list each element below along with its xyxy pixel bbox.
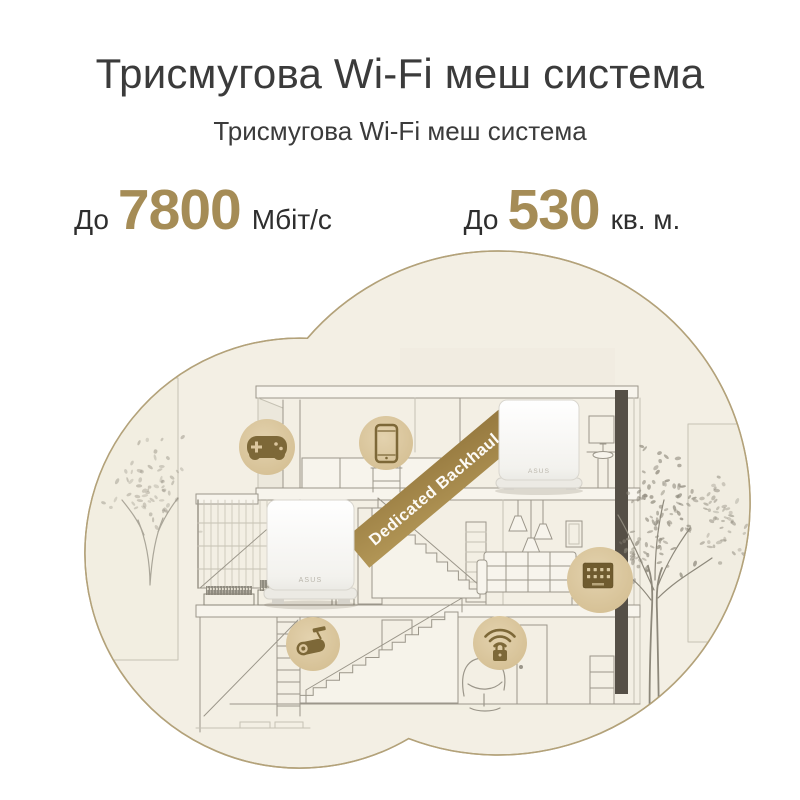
spec-coverage-unit: кв. м. bbox=[611, 204, 681, 236]
router-main-brand-label: ASUS bbox=[299, 577, 323, 584]
spec-speed: До 7800 Мбіт/с bbox=[74, 177, 332, 243]
smart-panel-icon bbox=[567, 547, 633, 613]
spec-speed-prefix: До bbox=[74, 204, 109, 236]
spec-speed-value: 7800 bbox=[118, 177, 241, 243]
gamepad-icon bbox=[239, 419, 295, 475]
router-main: ASUS bbox=[264, 500, 358, 610]
mesh-house-illustration: Dedicated Backhaul ASUS ASUS bbox=[0, 240, 800, 800]
spec-coverage: До 530 кв. м. bbox=[464, 177, 681, 243]
secured-wifi-icon bbox=[473, 616, 527, 670]
spec-coverage-value: 530 bbox=[508, 177, 600, 243]
router-node: ASUS bbox=[495, 400, 583, 495]
product-banner: Трисмугова Wi-Fi меш система Трисмугова … bbox=[0, 0, 800, 800]
router-node-brand-label: ASUS bbox=[528, 468, 550, 475]
spec-coverage-prefix: До bbox=[464, 204, 499, 236]
page-title: Трисмугова Wi-Fi меш система bbox=[0, 50, 800, 98]
dark-beam bbox=[615, 390, 628, 694]
page-subtitle: Трисмугова Wi-Fi меш система bbox=[0, 116, 800, 147]
security-camera-icon bbox=[286, 617, 340, 671]
spec-speed-unit: Мбіт/с bbox=[252, 204, 332, 236]
